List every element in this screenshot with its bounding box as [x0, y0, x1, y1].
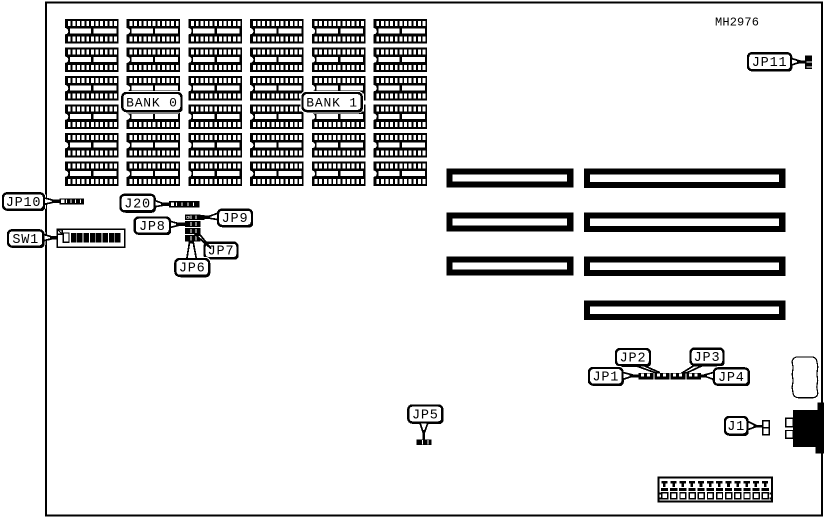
svg-text:BANK 0: BANK 0: [126, 95, 178, 110]
svg-text:JP6: JP6: [179, 262, 206, 277]
svg-text:J20: J20: [124, 197, 151, 212]
svg-text:JP3: JP3: [694, 351, 721, 366]
svg-text:JP8: JP8: [139, 220, 166, 235]
svg-text:JP10: JP10: [6, 196, 42, 211]
svg-text:JP2: JP2: [620, 351, 647, 366]
svg-text:J1: J1: [727, 420, 745, 435]
svg-text:JP11: JP11: [752, 56, 788, 71]
svg-text:BANK 1: BANK 1: [306, 95, 358, 110]
svg-text:MH2976: MH2976: [715, 16, 759, 30]
svg-text:JP9: JP9: [222, 212, 249, 227]
svg-text:JP5: JP5: [412, 408, 439, 423]
svg-text:JP1: JP1: [592, 371, 619, 386]
svg-text:JP7: JP7: [208, 245, 235, 260]
svg-text:JP4: JP4: [718, 371, 745, 386]
svg-text:SW1: SW1: [12, 233, 39, 248]
